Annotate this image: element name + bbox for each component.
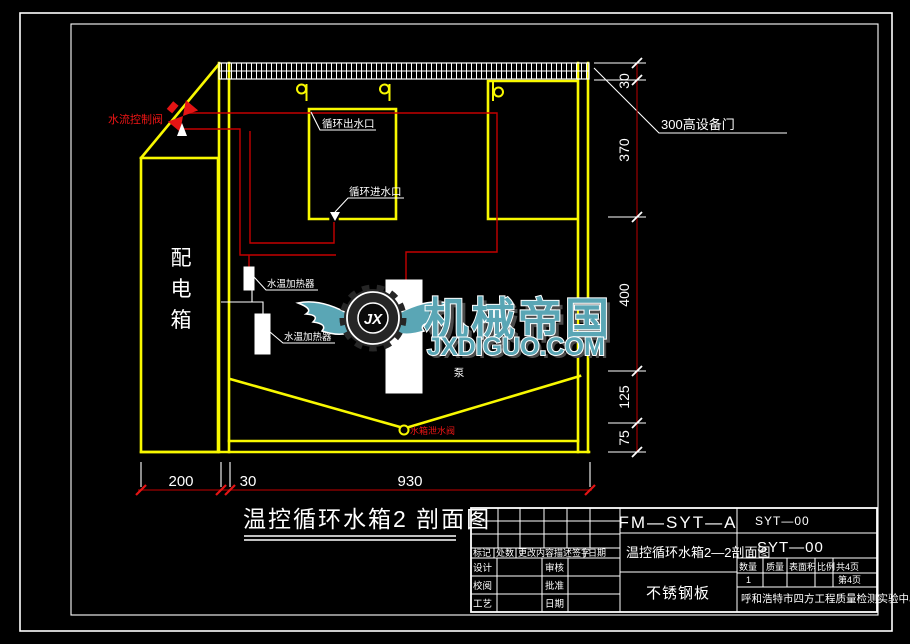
tb-scale-header: 比例 xyxy=(817,561,835,572)
tb-rev-count: 处数 xyxy=(496,547,514,558)
tb-field-date: 日期 xyxy=(545,599,564,610)
heater1-label: 水温加热器 xyxy=(267,278,315,290)
tb-rev-desc: 更改内容描述签字 xyxy=(518,547,590,558)
tb-field-approve: 批准 xyxy=(545,580,565,592)
equip-door-label: 300高设备门 xyxy=(661,117,735,132)
svg-text:电: 电 xyxy=(171,278,192,301)
dim-930: 930 xyxy=(397,473,422,490)
tb-pages-total: 共4页 xyxy=(836,562,859,572)
tb-rev-date: 日期 xyxy=(588,548,606,558)
tb-qty-value: 1 xyxy=(746,575,751,585)
outlet-label: 循环出水口 xyxy=(322,117,375,130)
flow-valve-label: 水流控制阀 xyxy=(108,112,163,126)
dim-400: 400 xyxy=(616,283,632,307)
hanger-hooks xyxy=(297,81,503,101)
tb-drawing-no: SYT—00 xyxy=(755,514,810,528)
tb-doc-code: FM—SYT—A xyxy=(619,513,738,532)
tb-page-number: 第4页 xyxy=(838,574,861,585)
watermark: JX 机械帝国 机械帝国 JXDIGUO.COM JXDIGUO.COM xyxy=(298,289,616,364)
tb-company: 呼和浩特市四方工程质量检测实验中心 xyxy=(741,592,910,605)
inlet-arrow xyxy=(330,212,340,221)
tb-qty-header: 数量 xyxy=(739,561,757,572)
drain-valve-label: 水箱泄水阀 xyxy=(410,425,455,436)
drawing-title: 温控循环水箱2 剖面图 xyxy=(243,506,491,540)
inlet-label: 循环进水口 xyxy=(349,185,402,198)
tb-material: 不锈钢板 xyxy=(646,584,710,602)
distribution-box-outline xyxy=(141,158,218,452)
tb-area-header: 表面积 xyxy=(789,561,816,572)
svg-text:温控循环水箱2 剖面图: 温控循环水箱2 剖面图 xyxy=(243,506,491,532)
svg-text:箱: 箱 xyxy=(171,309,192,332)
dim-30: 30 xyxy=(616,73,632,89)
heater-1 xyxy=(244,267,254,290)
electrical-wiring xyxy=(184,113,497,280)
dimension-bottom: 200 30 930 xyxy=(136,462,595,495)
heater2-label: 水温加热器 xyxy=(284,331,332,343)
tb-mass-header: 质量 xyxy=(766,561,784,572)
dim-125: 125 xyxy=(616,385,632,409)
watermark-logo-text: JX xyxy=(364,311,383,328)
tb-field-review: 校阅 xyxy=(473,580,492,592)
drawing-sheet: 30 370 400 125 75 200 30 930 水流控制阀 循环出水口… xyxy=(0,0,910,644)
watermark-site: JXDIGUO.COM xyxy=(427,333,605,361)
tb-drawing-title: 温控循环水箱2—2剖面图 xyxy=(626,545,770,560)
tb-field-check: 审核 xyxy=(545,562,565,574)
right-compartment xyxy=(488,81,577,219)
tank-left-wall xyxy=(219,63,229,452)
dim-200: 200 xyxy=(168,473,193,490)
distribution-box-label: 配 电 箱 xyxy=(171,247,192,332)
drain-outlet xyxy=(400,426,409,435)
dim-75: 75 xyxy=(616,430,632,446)
pump-label: 泵 xyxy=(454,367,465,379)
tank-cover-grating xyxy=(219,63,589,79)
dim-370: 370 xyxy=(616,138,632,162)
title-block: 标记 处数 更改内容描述签字 日期 设计 审核 校阅 批准 工艺 日期 FM—S… xyxy=(471,508,910,612)
svg-text:配: 配 xyxy=(171,247,192,270)
tank-bottom xyxy=(141,441,589,452)
heater-wires xyxy=(221,290,263,314)
tb-rev-mark: 标记 xyxy=(473,547,491,558)
tank-right-wall xyxy=(578,63,588,452)
title-underline xyxy=(244,536,456,540)
tb-field-craft: 工艺 xyxy=(473,599,492,610)
cad-canvas: 30 370 400 125 75 200 30 930 水流控制阀 循环出水口… xyxy=(0,0,910,644)
inlet-pipe-diagonal xyxy=(141,64,219,158)
dimension-right: 30 370 400 125 75 xyxy=(594,58,646,457)
tb-field-design: 设计 xyxy=(473,562,493,574)
dim-bottom-30: 30 xyxy=(240,473,257,490)
heater-2 xyxy=(255,314,270,354)
